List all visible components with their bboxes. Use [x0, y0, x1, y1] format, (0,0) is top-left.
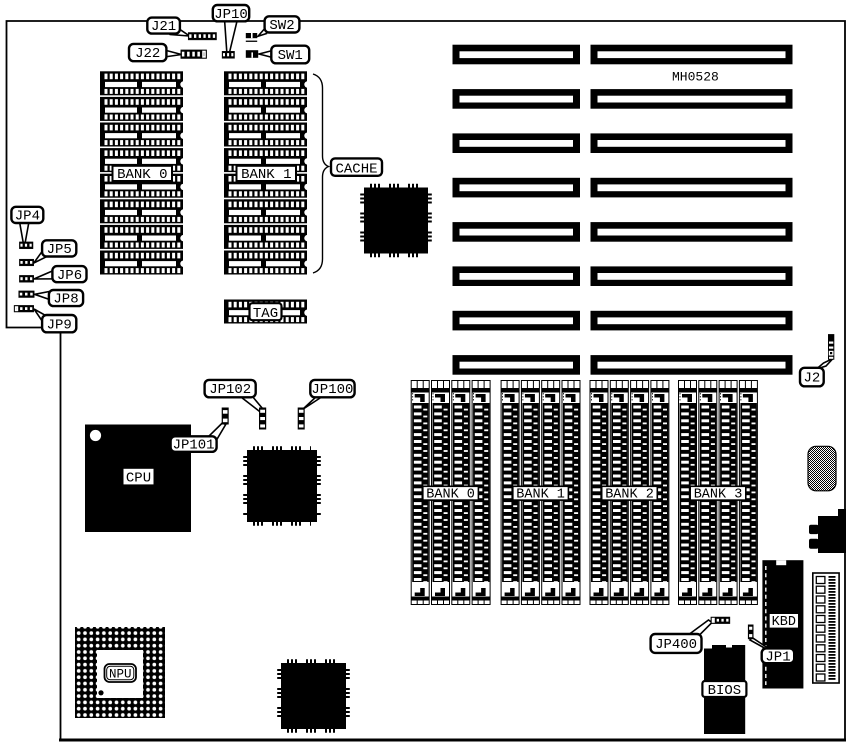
svg-text:CACHE: CACHE: [335, 161, 377, 177]
svg-text:BANK 1: BANK 1: [516, 488, 565, 503]
svg-text:J22: J22: [135, 46, 160, 62]
svg-text:BANK 2: BANK 2: [605, 488, 654, 503]
svg-text:TAG: TAG: [253, 306, 278, 322]
svg-text:JP8: JP8: [53, 292, 78, 308]
svg-text:JP400: JP400: [655, 637, 697, 653]
svg-text:MH0528: MH0528: [672, 70, 719, 85]
svg-text:JP100: JP100: [311, 382, 353, 398]
svg-text:JP4: JP4: [15, 209, 40, 225]
svg-text:BIOS: BIOS: [708, 683, 742, 699]
svg-text:BANK 0: BANK 0: [426, 488, 475, 503]
svg-text:JP6: JP6: [57, 268, 82, 284]
svg-text:J2: J2: [803, 371, 820, 387]
svg-text:JP102: JP102: [209, 382, 251, 398]
svg-text:J21: J21: [151, 19, 176, 35]
svg-text:JP10: JP10: [214, 7, 248, 23]
svg-text:CPU: CPU: [126, 470, 151, 486]
svg-text:JP5: JP5: [47, 242, 72, 258]
svg-text:JP101: JP101: [173, 438, 215, 454]
svg-text:BANK 1: BANK 1: [241, 167, 291, 183]
svg-text:SW1: SW1: [278, 48, 303, 64]
svg-text:BANK 0: BANK 0: [117, 167, 167, 183]
svg-text:JP1: JP1: [765, 649, 790, 665]
svg-text:JP9: JP9: [47, 317, 72, 333]
svg-text:NPU: NPU: [109, 668, 132, 682]
svg-text:BANK 3: BANK 3: [694, 488, 743, 503]
svg-text:KBD: KBD: [772, 615, 796, 630]
svg-text:SW2: SW2: [269, 18, 294, 34]
